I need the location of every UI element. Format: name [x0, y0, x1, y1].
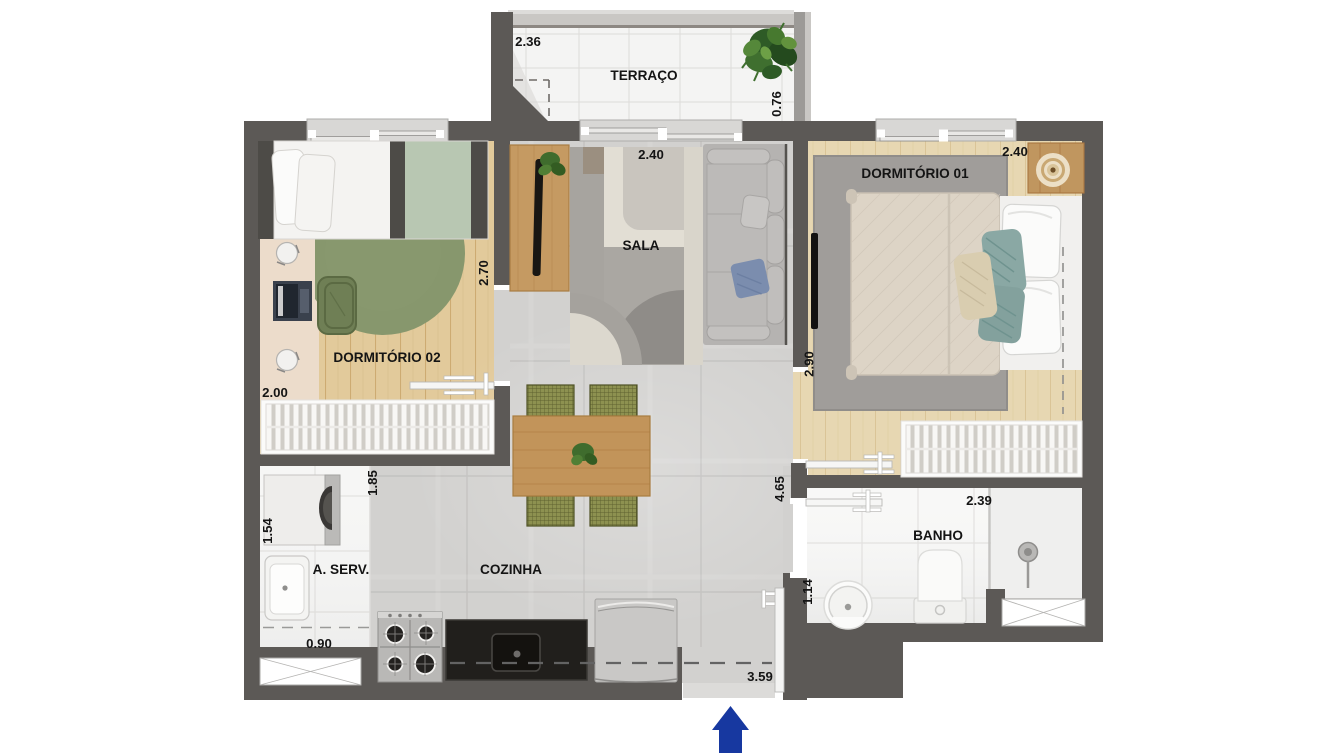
svg-text:2.40: 2.40: [1002, 144, 1028, 159]
svg-text:BANHO: BANHO: [913, 528, 963, 543]
svg-text:DORMITÓRIO 01: DORMITÓRIO 01: [861, 166, 969, 181]
svg-text:A. SERV.: A. SERV.: [313, 562, 370, 577]
svg-text:DORMITÓRIO 02: DORMITÓRIO 02: [333, 350, 441, 365]
svg-text:SALA: SALA: [622, 238, 659, 253]
svg-text:2.39: 2.39: [966, 493, 992, 508]
svg-text:1.54: 1.54: [260, 518, 275, 544]
svg-text:0.90: 0.90: [306, 636, 332, 651]
svg-text:1.85: 1.85: [365, 470, 380, 496]
svg-text:1.14: 1.14: [800, 579, 815, 605]
svg-text:2.70: 2.70: [476, 260, 491, 286]
svg-text:2.36: 2.36: [515, 34, 541, 49]
svg-text:COZINHA: COZINHA: [480, 562, 542, 577]
svg-text:2.40: 2.40: [638, 147, 664, 162]
svg-text:2.00: 2.00: [262, 385, 288, 400]
svg-text:0.76: 0.76: [769, 91, 784, 117]
svg-text:3.59: 3.59: [747, 669, 773, 684]
svg-text:2.90: 2.90: [802, 351, 817, 377]
svg-text:TERRAÇO: TERRAÇO: [610, 68, 677, 83]
svg-text:4.65: 4.65: [772, 476, 787, 502]
